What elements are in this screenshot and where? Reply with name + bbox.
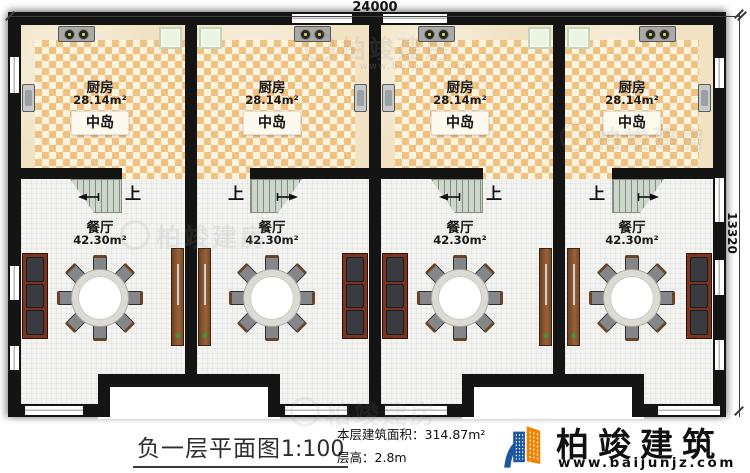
wall-party-3-4: [553, 12, 565, 387]
kitchen-area: 28.14m²: [217, 93, 327, 107]
fridge-icon: [199, 27, 222, 49]
brand-website: www.baijunjz.com: [558, 455, 736, 471]
fridge-icon: [567, 27, 590, 49]
window: [10, 57, 19, 93]
plan-title: 负一层平面图1:100: [133, 429, 348, 468]
stairs-up-label: 上: [486, 180, 502, 204]
round-dining-table: [432, 270, 488, 326]
brand-logo-icon: [497, 422, 551, 473]
stairs-up-label: 上: [228, 180, 244, 204]
sink-icon: [382, 84, 395, 112]
wall-party-2-3: [369, 12, 381, 417]
floor-area-line: 本层建筑面积：314.87m²: [337, 424, 485, 447]
round-dining-table: [72, 270, 128, 326]
kitchen-checker-floor: [565, 40, 699, 179]
watermark: 柏竣建房: [305, 30, 453, 66]
kitchen-checker-floor: [35, 40, 185, 179]
stove-icon: [58, 26, 95, 42]
kitchen-area: 28.14m²: [405, 93, 515, 107]
wall-notch: [98, 374, 280, 387]
plan-info: 本层建筑面积：314.87m² 层高：2.8m: [337, 424, 485, 469]
dining-table-set: [410, 248, 510, 348]
wall-notch-side: [268, 374, 280, 417]
wall-notch: [462, 374, 644, 387]
wall-kitchen-divider: [8, 168, 122, 179]
stairs-up-arrow-icon: [439, 187, 461, 197]
sofa: [342, 253, 368, 339]
watermark-url: www.baijunjz.com: [360, 62, 473, 72]
window: [658, 406, 720, 415]
island-label: 中岛: [431, 111, 489, 135]
dimension-line-top: [10, 16, 742, 17]
tall-cabinet: [171, 248, 184, 346]
stairs-up-arrow-icon: [637, 187, 659, 197]
kitchen-area: 28.14m²: [45, 93, 155, 107]
window: [715, 178, 724, 222]
dining-table-set: [582, 248, 682, 348]
round-dining-table: [604, 270, 660, 326]
stove-icon: [639, 26, 676, 42]
round-dining-table: [244, 270, 300, 326]
floor-plan-canvas: 上 上 上 上 厨房 28.14m² 中岛 餐厅 42.30m² 厨房 28.1…: [0, 0, 750, 473]
wall-party-1-2: [185, 12, 197, 387]
kitchen-area: 28.14m²: [577, 93, 687, 107]
wall-notch-side: [462, 374, 474, 417]
fridge-icon: [159, 27, 182, 49]
island-label: 中岛: [243, 111, 301, 135]
stairs-up-arrow-icon: [276, 187, 298, 197]
window: [10, 266, 19, 300]
fridge-icon: [528, 27, 551, 49]
sink-icon: [22, 84, 35, 112]
watermark: 柏竣建房: [560, 120, 708, 156]
dimension-right-label: 13320: [725, 210, 739, 256]
wall-notch-side: [632, 374, 644, 417]
wall-kitchen-divider: [250, 168, 381, 179]
sofa: [22, 253, 48, 339]
window: [715, 260, 724, 295]
window: [715, 58, 724, 88]
island-label: 中岛: [71, 111, 129, 135]
tall-cabinet: [567, 248, 580, 346]
dining-area: 42.30m²: [405, 233, 515, 247]
footprint-notch: [462, 387, 644, 419]
dining-table-set: [222, 248, 322, 348]
stairs-up-label: 上: [125, 180, 141, 204]
tall-cabinet: [539, 248, 552, 346]
tall-cabinet: [198, 248, 211, 346]
dimension-top-label: 24000: [15, 0, 735, 15]
dining-table-set: [50, 248, 150, 348]
sofa: [382, 253, 408, 339]
watermark: 柏竣建房: [120, 218, 268, 254]
wall-kitchen-divider: [369, 168, 483, 179]
window: [715, 340, 724, 370]
footprint-notch: [98, 387, 280, 419]
floor-height-line: 层高：2.8m: [337, 447, 485, 470]
dining-area: 42.30m²: [577, 233, 687, 247]
window: [10, 346, 19, 370]
stairs-up-arrow-icon: [78, 187, 100, 197]
wall-notch-side: [98, 374, 110, 417]
plan-scale: 1:100: [281, 437, 344, 462]
sink-icon: [698, 84, 711, 112]
window: [25, 406, 83, 415]
sofa: [686, 253, 712, 339]
dimension-line-right: [739, 14, 740, 417]
wall-kitchen-divider: [612, 168, 726, 179]
sink-icon: [354, 84, 367, 112]
stairs-up-label: 上: [589, 180, 605, 204]
plan-title-text: 负一层平面图: [137, 436, 281, 462]
